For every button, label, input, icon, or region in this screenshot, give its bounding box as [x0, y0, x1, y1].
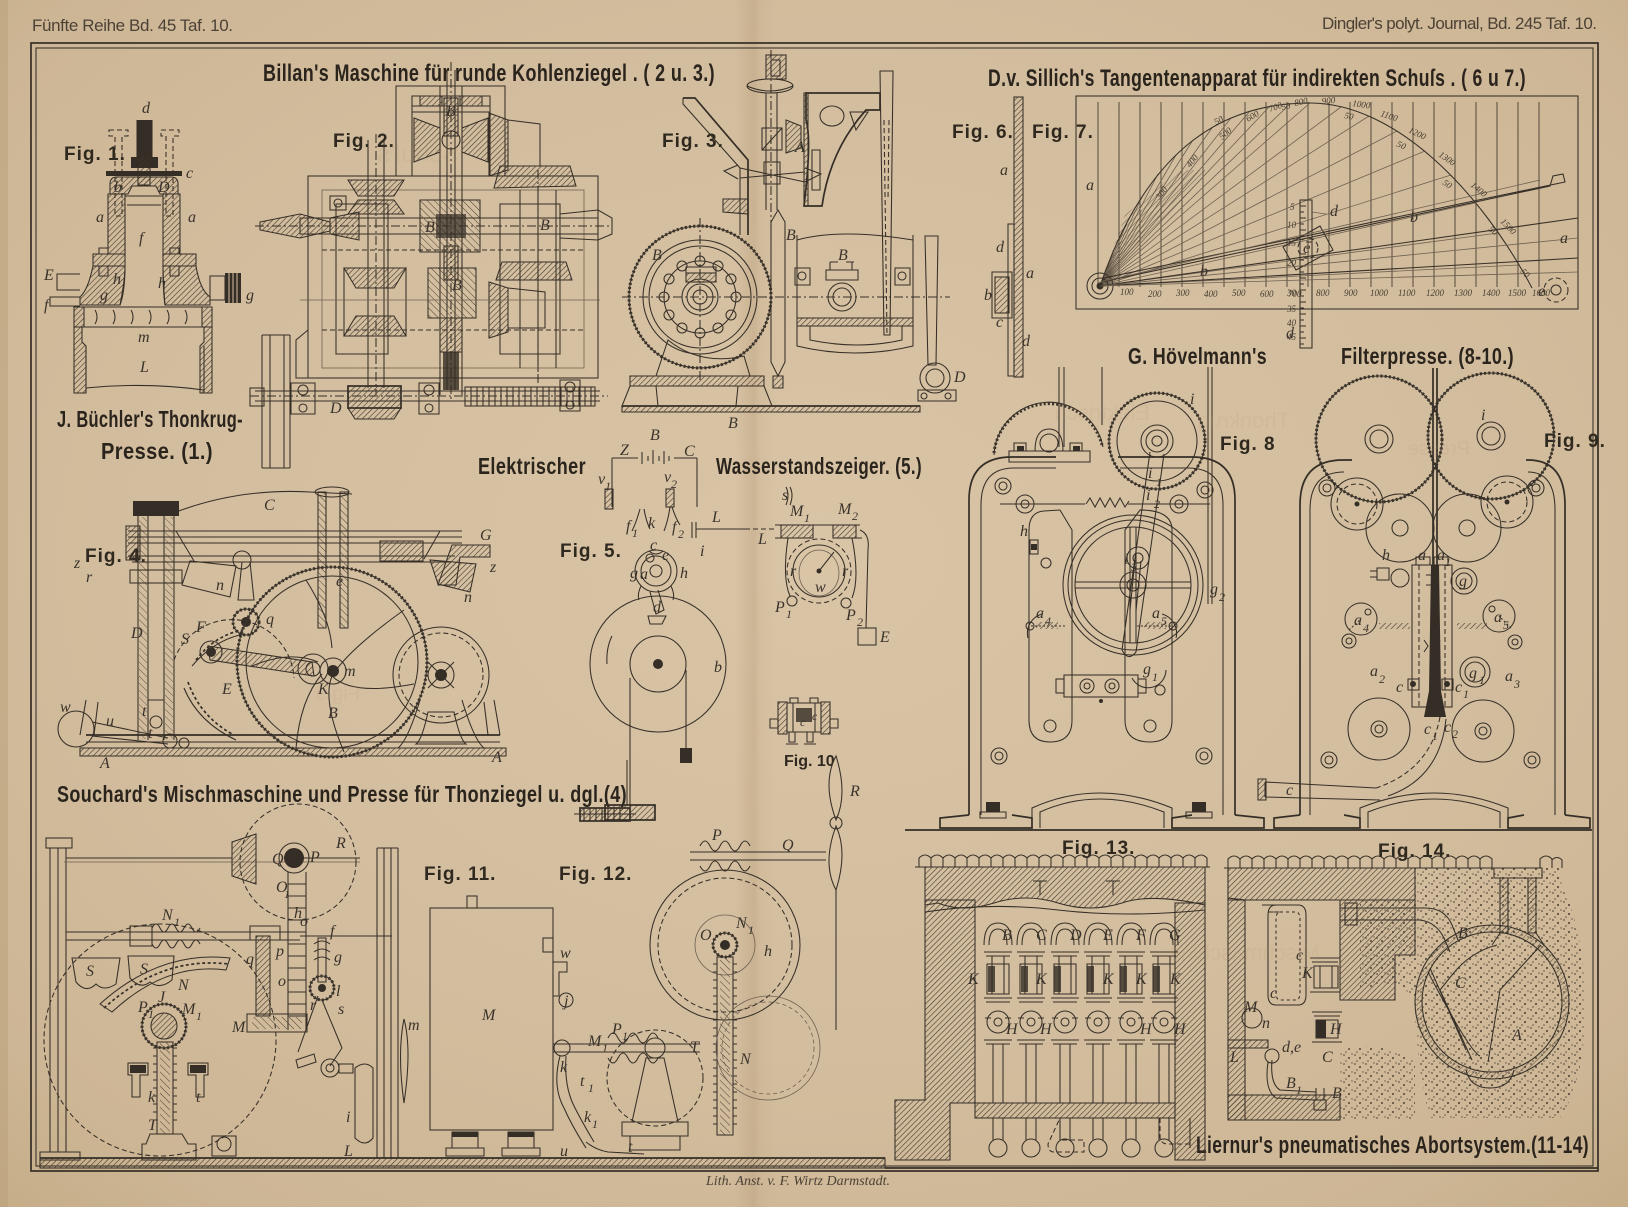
svg-text:c: c	[186, 165, 193, 182]
svg-text:g: g	[246, 287, 254, 304]
svg-text:F: F	[1135, 927, 1146, 944]
svg-text:C: C	[1455, 975, 1466, 992]
svg-text:A: A	[491, 749, 502, 766]
svg-text:t: t	[196, 1089, 201, 1106]
svg-text:500: 500	[1232, 288, 1246, 298]
svg-text:g: g	[1469, 665, 1477, 682]
svg-text:1000: 1000	[1370, 288, 1389, 298]
svg-text:g: g	[1210, 581, 1218, 598]
svg-text:B: B	[446, 103, 456, 120]
svg-text:N: N	[177, 977, 190, 994]
svg-text:B: B	[786, 227, 796, 244]
svg-text:w: w	[815, 579, 826, 596]
svg-text:1: 1	[605, 479, 611, 493]
svg-text:D: D	[953, 369, 966, 386]
svg-text:5: 5	[1503, 618, 1509, 632]
svg-text:b: b	[984, 287, 992, 304]
svg-text:R: R	[335, 835, 346, 852]
svg-text:a: a	[188, 209, 196, 226]
svg-text:Fig. 7.: Fig. 7.	[1032, 122, 1094, 143]
svg-text:Fig 9: Fig 9	[316, 683, 360, 705]
svg-text:b: b	[1200, 263, 1208, 280]
svg-text:S: S	[86, 963, 94, 980]
svg-text:r: r	[790, 563, 797, 580]
svg-text:1300: 1300	[1454, 288, 1473, 298]
svg-text:3: 3	[1130, 560, 1137, 574]
svg-text:a: a	[1036, 605, 1044, 622]
svg-text:1: 1	[1479, 673, 1485, 687]
svg-text:Thonkrug: Thonkrug	[1197, 408, 1290, 433]
svg-text:E: E	[879, 629, 890, 646]
svg-text:B: B	[650, 427, 660, 444]
svg-text:J: J	[158, 989, 166, 1006]
svg-text:d: d	[653, 599, 662, 616]
svg-text:2: 2	[1379, 672, 1385, 686]
svg-text:Fig. 6.: Fig. 6.	[952, 122, 1014, 143]
svg-text:P: P	[137, 999, 148, 1016]
svg-text:S: S	[140, 961, 148, 978]
svg-text:l: l	[336, 983, 341, 1000]
svg-text:M: M	[587, 1033, 603, 1050]
svg-text:M: M	[837, 501, 853, 518]
svg-text:Billan's Maschine für runde Ko: Billan's Maschine für runde Kohlenziegel…	[263, 60, 715, 87]
svg-text:B: B	[1332, 1085, 1342, 1102]
svg-text:a: a	[1494, 609, 1502, 626]
svg-text:a: a	[1418, 547, 1426, 564]
svg-text:5: 5	[1290, 202, 1295, 212]
svg-text:K: K	[1301, 965, 1314, 982]
svg-text:c: c	[1270, 985, 1277, 1002]
svg-text:800: 800	[1316, 288, 1330, 298]
svg-text:B: B	[1286, 1075, 1296, 1092]
svg-text:900: 900	[1344, 288, 1358, 298]
svg-text:r: r	[310, 997, 317, 1014]
svg-text:Fig. 1.: Fig. 1.	[64, 144, 126, 165]
svg-text:D.v. Sillich's Tangentenappara: D.v. Sillich's Tangentenapparat für indi…	[988, 65, 1526, 92]
svg-text:t: t	[628, 1139, 633, 1156]
svg-text:1400: 1400	[1482, 288, 1501, 298]
svg-text:A: A	[794, 139, 805, 156]
svg-text:w: w	[560, 945, 571, 962]
svg-text:Wasserstandszeiger. (5.): Wasserstandszeiger. (5.)	[716, 453, 922, 479]
svg-text:m: m	[408, 1017, 420, 1034]
svg-text:Souchard's Mischmaschine und P: Souchard's Mischmaschine und Presse für …	[57, 781, 627, 807]
svg-text:B: B	[1458, 925, 1468, 942]
svg-text:Elektrischer: Elektrischer	[478, 453, 586, 479]
svg-text:b: b	[114, 179, 122, 196]
svg-text:Presse. (1.): Presse. (1.)	[101, 438, 213, 464]
svg-text:2: 2	[671, 477, 677, 491]
svg-text:A: A	[99, 755, 110, 772]
svg-text:h: h	[764, 943, 772, 960]
svg-text:1: 1	[1152, 670, 1158, 684]
svg-text:o: o	[278, 973, 286, 990]
svg-text:C: C	[264, 497, 275, 514]
svg-text:m: m	[344, 663, 356, 680]
svg-text:h: h	[158, 275, 166, 292]
svg-text:O: O	[700, 927, 712, 944]
svg-text:900: 900	[1321, 95, 1336, 106]
svg-text:L: L	[1229, 1049, 1239, 1066]
svg-text:a: a	[1370, 663, 1378, 680]
svg-text:1100: 1100	[1398, 288, 1416, 298]
svg-text:B: B	[728, 415, 738, 432]
svg-text:Filterpresse. (8-10.): Filterpresse. (8-10.)	[1341, 343, 1514, 369]
svg-text:P: P	[309, 849, 320, 866]
svg-text:c: c	[1455, 679, 1462, 696]
svg-text:1: 1	[1463, 687, 1469, 701]
svg-text:5: 5	[1161, 614, 1167, 628]
svg-text:i: i	[1124, 551, 1128, 568]
svg-text:i: i	[1481, 407, 1485, 424]
svg-text:H: H	[1039, 1021, 1053, 1038]
svg-text:h: h	[680, 565, 688, 582]
svg-text:c: c	[1424, 721, 1431, 738]
svg-text:o: o	[300, 913, 308, 930]
svg-text:2: 2	[852, 509, 858, 523]
svg-text:300: 300	[1175, 288, 1190, 298]
svg-text:P: P	[845, 607, 856, 624]
svg-text:R: R	[849, 783, 860, 800]
svg-text:a: a	[1026, 265, 1034, 282]
svg-text:d: d	[1022, 333, 1031, 350]
svg-text:35: 35	[1286, 304, 1297, 314]
svg-text:D: D	[157, 179, 170, 196]
svg-text:c: c	[812, 709, 818, 723]
svg-text:C: C	[1036, 927, 1047, 944]
svg-text:N: N	[739, 1051, 752, 1068]
svg-text:P: P	[774, 599, 785, 616]
svg-text:Fünfte Reihe Bd. 45 Taf. 10.: Fünfte Reihe Bd. 45 Taf. 10.	[32, 16, 234, 35]
svg-text:D: D	[1069, 927, 1082, 944]
svg-text:M: M	[789, 503, 805, 520]
svg-text:F: F	[195, 619, 206, 636]
svg-text:A: A	[1511, 1027, 1522, 1044]
svg-text:h: h	[1020, 523, 1028, 540]
svg-text:Liernur's pneumatisches Aborts: Liernur's pneumatisches Abortsystem.(11-…	[1196, 1132, 1589, 1159]
svg-text:a: a	[1505, 668, 1513, 685]
svg-text:g: g	[334, 949, 342, 966]
svg-text:1: 1	[1296, 1083, 1302, 1097]
svg-text:K: K	[1035, 971, 1048, 988]
svg-text:a: a	[1354, 612, 1362, 629]
svg-text:1: 1	[196, 1009, 202, 1023]
svg-text:i: i	[700, 543, 704, 560]
svg-text:s: s	[338, 1001, 344, 1018]
svg-text:t: t	[148, 725, 153, 742]
svg-text:T: T	[690, 1039, 700, 1056]
svg-text:a: a	[1152, 605, 1160, 622]
svg-text:d: d	[1286, 325, 1295, 342]
svg-text:u: u	[106, 713, 114, 730]
svg-text:Q: Q	[272, 851, 284, 868]
svg-text:c: c	[800, 715, 806, 729]
svg-text:g: g	[1459, 573, 1467, 590]
svg-text:G: G	[480, 527, 492, 544]
svg-text:z: z	[489, 559, 497, 576]
svg-text:m: m	[138, 329, 150, 346]
svg-text:P: P	[711, 827, 722, 844]
svg-text:a: a	[640, 566, 648, 583]
svg-text:k: k	[584, 1109, 592, 1126]
svg-text:700: 700	[1288, 289, 1302, 299]
svg-text:p: p	[275, 943, 284, 960]
svg-text:1: 1	[632, 526, 638, 540]
svg-text:P: P	[611, 1021, 622, 1038]
svg-text:a: a	[1086, 177, 1094, 194]
svg-text:1: 1	[748, 923, 754, 937]
svg-text:B: B	[652, 247, 662, 264]
svg-text:w: w	[60, 699, 71, 716]
svg-text:E: E	[1102, 927, 1113, 944]
svg-text:1: 1	[602, 1041, 608, 1055]
svg-text:2: 2	[1219, 590, 1225, 604]
svg-text:i: i	[1146, 487, 1150, 504]
svg-text:B: B	[452, 277, 462, 294]
svg-text:K: K	[967, 971, 980, 988]
svg-text:K: K	[1169, 971, 1182, 988]
svg-text:Fig. 5.: Fig. 5.	[560, 541, 622, 562]
svg-text:1: 1	[284, 887, 290, 901]
svg-text:10: 10	[1287, 220, 1297, 230]
svg-text:H: H	[1173, 1021, 1187, 1038]
svg-text:i: i	[346, 1109, 350, 1126]
svg-text:C: C	[684, 443, 695, 460]
svg-text:B: B	[540, 217, 550, 234]
svg-text:C: C	[1322, 1049, 1333, 1066]
svg-text:E: E	[221, 681, 232, 698]
svg-text:4: 4	[1045, 614, 1051, 628]
svg-text:L: L	[139, 359, 149, 376]
svg-text:d: d	[996, 239, 1005, 256]
svg-text:q: q	[246, 951, 254, 968]
svg-text:Z: Z	[620, 442, 630, 459]
svg-text:g: g	[1143, 661, 1151, 678]
svg-text:H: H	[1329, 1021, 1343, 1038]
svg-text:1: 1	[1445, 555, 1451, 569]
svg-text:1: 1	[148, 1007, 154, 1021]
svg-text:Lith. Anst. v. F. Wirtz Darmst: Lith. Anst. v. F. Wirtz Darmstadt.	[705, 1174, 890, 1189]
svg-text:t: t	[580, 1073, 585, 1090]
svg-text:H: H	[1139, 1021, 1153, 1038]
svg-text:K: K	[1135, 971, 1148, 988]
svg-text:c: c	[1396, 679, 1403, 696]
svg-text:N: N	[161, 907, 174, 924]
svg-text:k: k	[148, 1089, 156, 1106]
svg-text:a: a	[1560, 230, 1568, 247]
svg-text:Q: Q	[782, 837, 794, 854]
svg-text:a: a	[1000, 162, 1008, 179]
svg-text:M: M	[181, 1001, 197, 1018]
svg-text:L: L	[711, 509, 721, 526]
svg-text:d: d	[1330, 203, 1339, 220]
svg-text:a: a	[1437, 547, 1445, 564]
svg-text:1600: 1600	[1532, 288, 1551, 298]
svg-text:15: 15	[1287, 238, 1297, 248]
svg-text:E: E	[43, 267, 54, 284]
svg-text:M: M	[481, 1007, 497, 1024]
svg-text:i: i	[1190, 391, 1194, 408]
svg-text:Fig. 11.: Fig. 11.	[424, 864, 496, 885]
svg-text:h: h	[113, 271, 121, 288]
svg-text:1: 1	[588, 1081, 594, 1095]
svg-text:3: 3	[1513, 677, 1520, 691]
svg-text:K: K	[1102, 971, 1115, 988]
svg-text:d,e: d,e	[1282, 1039, 1301, 1056]
svg-text:2: 2	[857, 615, 863, 629]
svg-text:200: 200	[1148, 289, 1162, 299]
svg-text:a: a	[96, 209, 104, 226]
svg-text:M: M	[231, 1019, 247, 1036]
svg-text:c: c	[996, 314, 1003, 331]
svg-text:n: n	[1262, 1015, 1270, 1032]
svg-text:D: D	[329, 400, 342, 417]
svg-text:Fig. 12.: Fig. 12.	[559, 864, 632, 885]
svg-text:e: e	[662, 547, 669, 564]
svg-text:q: q	[266, 611, 274, 628]
svg-text:g: g	[630, 565, 638, 582]
svg-text:Fig. 3.: Fig. 3.	[662, 131, 724, 152]
svg-text:Dingler's polyt. Journal, Bd.: Dingler's polyt. Journal, Bd. 245 Taf. 1…	[1322, 14, 1598, 33]
svg-text:B: B	[1002, 927, 1012, 944]
svg-text:r: r	[842, 563, 849, 580]
svg-text:600: 600	[1260, 289, 1274, 299]
svg-text:e: e	[336, 573, 343, 590]
svg-text:N: N	[735, 915, 748, 932]
svg-text:2: 2	[678, 527, 684, 541]
svg-text:1500: 1500	[1508, 288, 1527, 298]
svg-text:G. Hövelmann's: G. Hövelmann's	[1128, 343, 1267, 369]
svg-text:4: 4	[1363, 621, 1369, 635]
svg-text:400: 400	[1204, 289, 1218, 299]
svg-text:1: 1	[804, 511, 810, 525]
svg-text:H: H	[1005, 1021, 1019, 1038]
svg-text:D: D	[130, 625, 143, 642]
svg-text:d: d	[142, 100, 151, 117]
svg-text:b: b	[1410, 209, 1418, 226]
svg-text:1: 1	[174, 915, 180, 929]
svg-text:g: g	[100, 287, 108, 304]
svg-text:k: k	[648, 515, 656, 532]
svg-text:Schul's: Schul's	[377, 138, 460, 168]
svg-text:c: c	[650, 537, 657, 554]
svg-text:B: B	[838, 247, 848, 264]
svg-text:1: 1	[592, 1117, 598, 1131]
svg-text:M: M	[1243, 999, 1259, 1016]
svg-text:b: b	[714, 659, 722, 676]
svg-text:r: r	[86, 569, 93, 586]
svg-text:k: k	[560, 1059, 568, 1076]
svg-text:100: 100	[1120, 287, 1134, 297]
svg-text:Elektrisch: Elektrisch	[1055, 400, 1150, 425]
svg-text:1: 1	[786, 607, 792, 621]
svg-text:n: n	[216, 577, 224, 594]
svg-text:Mischmaschine: Mischmaschine	[1168, 940, 1320, 965]
svg-text:t: t	[142, 703, 147, 720]
svg-text:L: L	[757, 531, 767, 548]
svg-text:T: T	[148, 1117, 158, 1134]
svg-text:h: h	[1382, 547, 1390, 564]
svg-text:J. Büchler's Thonkrug-: J. Büchler's Thonkrug-	[57, 406, 243, 432]
svg-text:Presse: Presse	[1408, 438, 1470, 460]
svg-text:Fig. 14.: Fig. 14.	[1378, 841, 1451, 862]
svg-text:1200: 1200	[1426, 288, 1445, 298]
svg-text:Fig. 8: Fig. 8	[1220, 434, 1276, 455]
svg-text:z: z	[73, 555, 81, 572]
svg-text:c: c	[1286, 782, 1293, 799]
svg-text:B: B	[328, 705, 338, 722]
